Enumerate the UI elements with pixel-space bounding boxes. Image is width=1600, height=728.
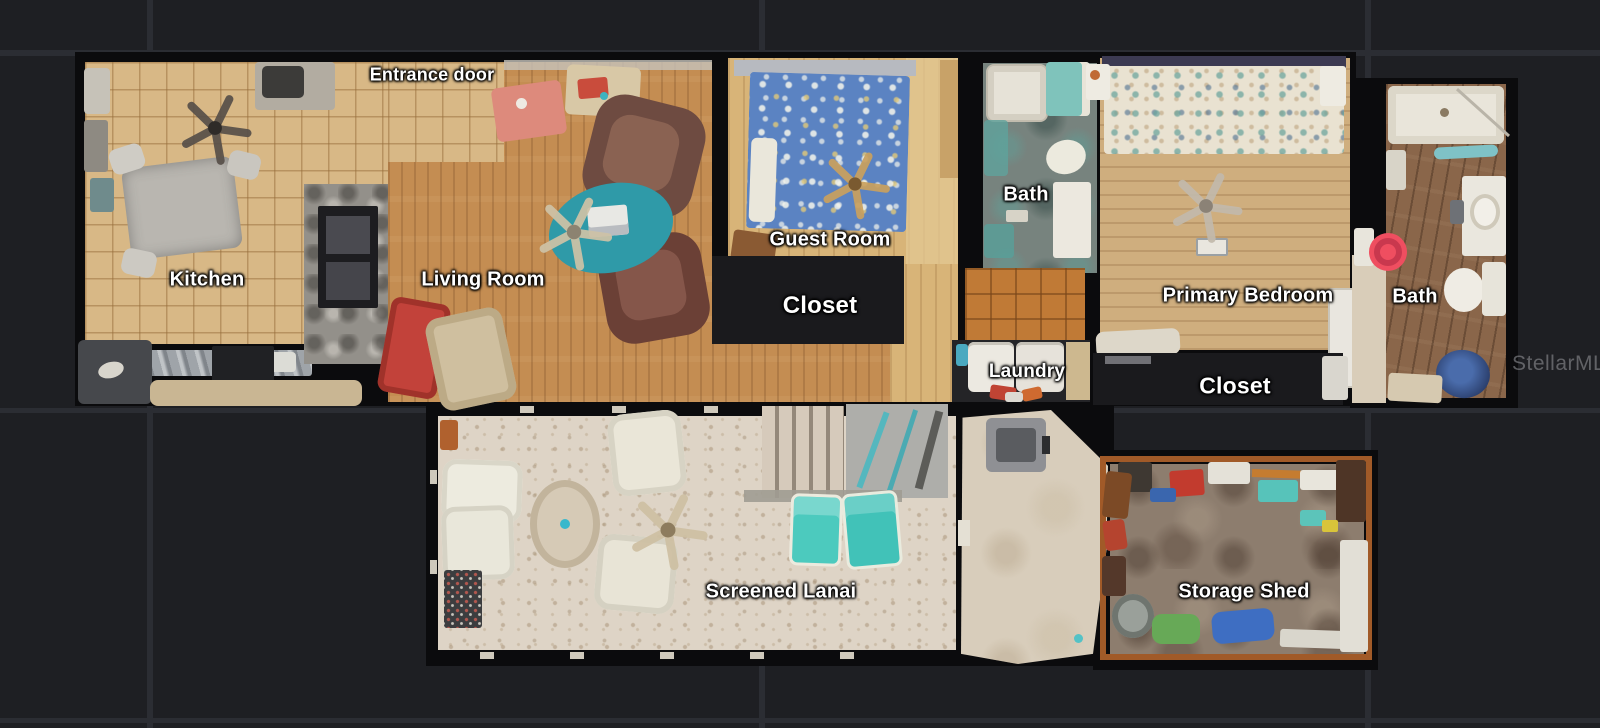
nightstand	[1320, 66, 1346, 106]
room-label-kitchen: Kitchen	[170, 269, 245, 292]
screen-post	[480, 652, 494, 659]
camera-position-marker[interactable]	[1369, 233, 1407, 271]
screen-post	[750, 652, 764, 659]
stairs	[762, 406, 844, 498]
kettle	[1112, 594, 1154, 638]
room-label-entrance-door: Entrance door	[370, 65, 495, 86]
bath-vanity	[1053, 182, 1091, 258]
orange-planter	[440, 420, 458, 450]
teal-decor	[560, 519, 570, 529]
shelf-white	[1386, 150, 1406, 190]
door-mat	[444, 570, 482, 628]
shed-item-white	[1208, 462, 1250, 484]
laundry-shelf	[1066, 342, 1090, 400]
floorplan-viewer: Entrance door Kitchen Living Room Guest …	[0, 0, 1600, 728]
screen-post	[570, 652, 584, 659]
hall-strip-floor	[1352, 255, 1386, 403]
trash-can	[1450, 200, 1464, 224]
room-label-primary-bedroom: Primary Bedroom	[1163, 285, 1334, 308]
screen-post	[430, 470, 437, 484]
room-label-screened-lanai: Screened Lanai	[706, 581, 857, 604]
shed-item-white	[1300, 470, 1340, 490]
room-label-closet-guest: Closet	[783, 292, 858, 320]
screen-post	[612, 406, 626, 413]
room-label-bath-guest: Bath	[1003, 184, 1048, 207]
wall-art	[90, 178, 114, 212]
teal-lounge-chair	[789, 493, 843, 567]
closet-item-white	[1322, 356, 1348, 400]
screen-post	[840, 652, 854, 659]
countertop-appliance	[262, 66, 304, 98]
pink-table	[491, 79, 568, 142]
grid-line-horizontal	[0, 718, 1600, 723]
teal-lounge-chair	[841, 490, 903, 571]
primary-bed	[1104, 66, 1344, 154]
shed-item-rust	[1102, 471, 1133, 519]
stove-door	[326, 262, 370, 300]
room-label-storage-shed: Storage Shed	[1178, 581, 1309, 604]
grill-handle	[1042, 436, 1050, 454]
teal-rug	[984, 224, 1014, 258]
sink	[1470, 194, 1500, 230]
wicker-chair	[606, 408, 688, 497]
room-label-closet-primary: Closet	[1199, 373, 1271, 400]
freezer	[1340, 540, 1368, 652]
laundry-item-white	[1005, 392, 1023, 402]
room-label-bath-primary: Bath	[1392, 286, 1437, 309]
laundry-item-teal	[956, 344, 968, 366]
beige-towel	[1387, 373, 1442, 404]
guest-dresser	[940, 60, 958, 178]
dining-table	[121, 156, 243, 261]
screen-post	[430, 560, 437, 574]
stove-door	[326, 216, 370, 254]
tub-drain	[1440, 108, 1449, 117]
sofa	[150, 380, 362, 406]
room-label-laundry: Laundry	[989, 361, 1065, 383]
stellar-mls-watermark: StellarMLS	[1512, 352, 1600, 376]
teal-decor	[1074, 634, 1083, 643]
white-edge-piece	[958, 520, 970, 546]
nightstand	[1086, 64, 1110, 100]
screen-post	[660, 652, 674, 659]
stove	[84, 120, 108, 172]
screen-post	[520, 406, 534, 413]
shed-item-teal	[1258, 480, 1298, 502]
shed-item-blue	[1211, 607, 1276, 644]
closet-shelf-marks	[1105, 356, 1151, 364]
room-label-guest-room: Guest Room	[770, 229, 891, 252]
shed-item-dark	[1102, 556, 1126, 596]
towels	[1046, 62, 1090, 116]
bathtub	[986, 64, 1048, 122]
shed-item-green	[1152, 614, 1200, 644]
room-label-living-room: Living Room	[421, 269, 544, 292]
hall-tile-floor[interactable]	[965, 268, 1085, 340]
shed-item-blue	[1150, 488, 1176, 502]
toilet-tank	[1482, 262, 1506, 316]
refrigerator	[84, 68, 110, 114]
grill-lid	[996, 428, 1036, 462]
shed-item-yellow	[1322, 520, 1338, 532]
shed-item-darkbrown	[1336, 460, 1366, 522]
shed-item-red	[1102, 519, 1128, 552]
tv	[212, 346, 274, 384]
lamp	[1090, 70, 1100, 80]
toilet	[1444, 268, 1484, 312]
teal-rug	[984, 120, 1008, 176]
cup	[516, 98, 527, 109]
guest-pillow	[749, 138, 778, 223]
floor-vent	[1006, 210, 1028, 222]
screen-post	[704, 406, 718, 413]
